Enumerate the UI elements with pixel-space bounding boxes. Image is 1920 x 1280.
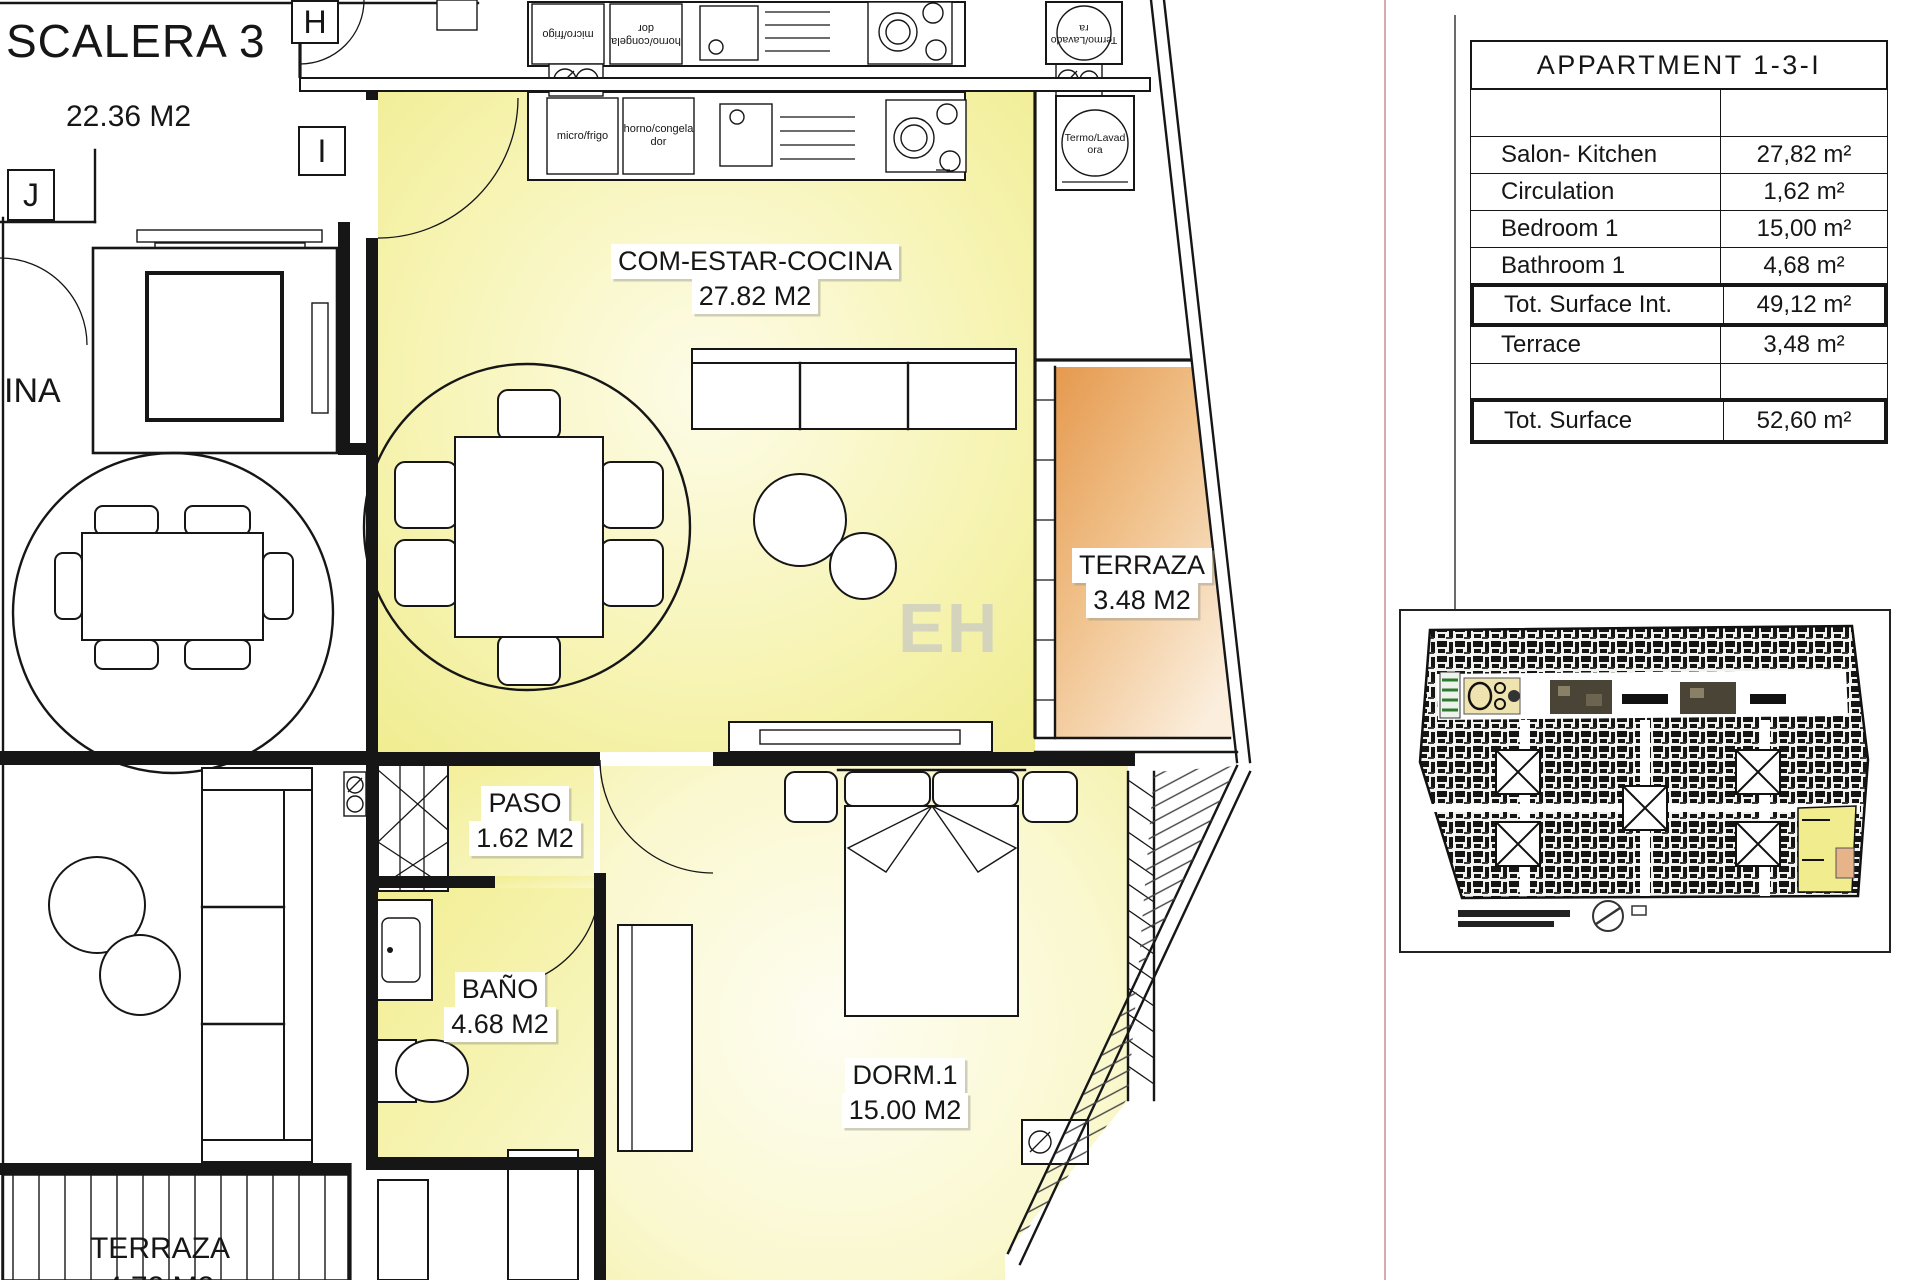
room-area: 3.48 M2 xyxy=(1086,583,1198,618)
appliance-label-oven-freezer: horno/congelador xyxy=(610,4,682,64)
room-name: COM-ESTAR-COCINA xyxy=(611,244,899,279)
appliance-label-boiler-washer: Termo/Lavadora xyxy=(1062,118,1128,170)
hob-symbol-icon xyxy=(344,772,366,816)
toilet-icon xyxy=(372,1040,468,1102)
room-area: 15.00 M2 xyxy=(842,1093,969,1128)
grid-letter-j: J xyxy=(7,169,55,221)
neighbor-terrace-label: TERRAZA 4.72 M2 xyxy=(30,1230,290,1280)
terrace-label: TERRAZA 3.48 M2 xyxy=(1062,548,1222,618)
room-name: TERRAZA xyxy=(1072,548,1212,583)
bath-label: BAÑO 4.68 M2 xyxy=(410,972,590,1042)
overview-plan-figure xyxy=(1400,610,1890,952)
appliance-label-boiler-washer: Termo/Lavadora xyxy=(1050,8,1118,60)
grid-letter-i: I xyxy=(298,126,346,176)
table-row: Salon- Kitchen 27,82 m² xyxy=(1470,137,1888,174)
hall-wardrobe-icon xyxy=(378,765,448,891)
appliance-label-oven-freezer: horno/congelador xyxy=(623,98,694,174)
table-row: Bedroom 1 15,00 m² xyxy=(1470,211,1888,248)
table-row-total: Tot. Surface 52,60 m² xyxy=(1470,398,1888,444)
sofa-icon xyxy=(692,349,1016,429)
room-area: 27.82 M2 xyxy=(692,279,819,314)
bed-icon xyxy=(838,770,1025,1016)
floor-plan-sheet: SCALERA 3 22.36 M2 H I J INA COM-ESTAR-C… xyxy=(0,0,1920,1280)
tv-cabinet-icon xyxy=(729,722,992,752)
stair-area-label: 22.36 M2 xyxy=(66,100,191,134)
neighbor-unit xyxy=(0,150,350,1280)
watermark: EH xyxy=(898,588,999,668)
grid-letter-h: H xyxy=(291,0,339,44)
room-name: PASO xyxy=(481,786,568,821)
neighbor-sofa-icon xyxy=(202,768,312,1162)
hob-icon xyxy=(868,2,952,64)
bedroom-label: DORM.1 15.00 M2 xyxy=(805,1058,1005,1128)
plant-icon xyxy=(49,857,180,1015)
table-row: Terrace 3,48 m² xyxy=(1470,327,1888,364)
appliance-label-micro-fridge: micro/frigo xyxy=(532,4,604,64)
appliance-label-micro-fridge: micro/frigo xyxy=(547,98,618,174)
table-row-total-interior: Tot. Surface Int. 49,12 m² xyxy=(1470,283,1888,327)
table-row xyxy=(1470,90,1888,137)
hob-icon xyxy=(886,100,966,172)
room-name: BAÑO xyxy=(455,972,546,1007)
table-row: Bathroom 1 4,68 m² xyxy=(1470,248,1888,285)
area-summary-table: APPARTMENT 1-3-I Salon- Kitchen 27,82 m²… xyxy=(1470,40,1888,444)
room-area: 4.72 M2 xyxy=(99,1269,221,1280)
room-area: 4.68 M2 xyxy=(444,1007,556,1042)
hall-label: PASO 1.62 M2 xyxy=(440,786,610,856)
table-row: Circulation 1,62 m² xyxy=(1470,174,1888,211)
neighbor-dining-table-icon xyxy=(13,453,333,773)
living-room-label: COM-ESTAR-COCINA 27.82 M2 xyxy=(590,244,920,314)
table-title: APPARTMENT 1-3-I xyxy=(1470,40,1888,90)
neighbor-room-label: INA xyxy=(4,372,61,411)
room-name: TERRAZA xyxy=(83,1230,237,1269)
table-row xyxy=(1470,364,1888,399)
bedroom-wardrobe-icon xyxy=(618,925,692,1151)
room-name: DORM.1 xyxy=(845,1058,964,1093)
room-area: 1.62 M2 xyxy=(469,821,581,856)
stair-label: SCALERA 3 xyxy=(6,14,266,68)
